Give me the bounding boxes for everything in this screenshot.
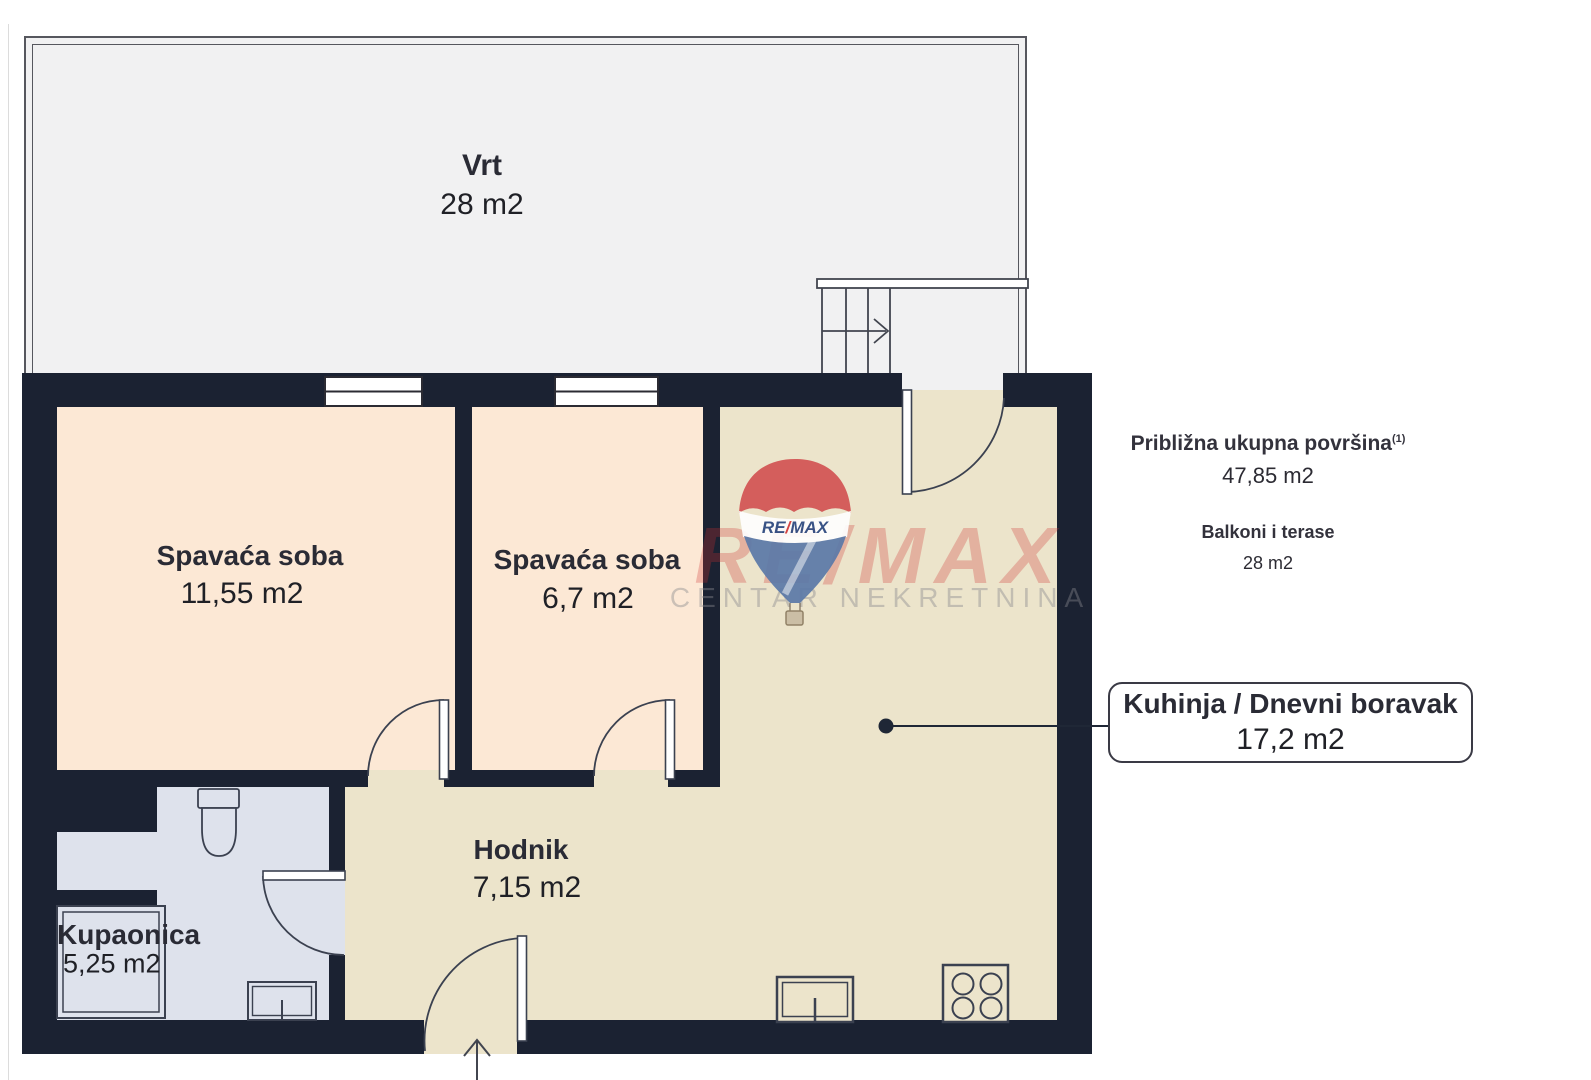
room-area-vrt: 28 m2: [440, 190, 523, 220]
wall-bottom-b: [517, 1020, 1092, 1054]
room-label-bedroom1: Spavaća soba: [157, 542, 344, 570]
wall-top-a: [22, 373, 902, 407]
kitchen-floor: [720, 407, 1057, 1020]
room-label-bedroom2: Spavaća soba: [494, 546, 681, 574]
wall-bedrooms-bottom-b: [444, 770, 594, 787]
kitchen-callout: Kuhinja / Dnevni boravak 17,2 m2: [1108, 682, 1473, 763]
floor-plan-page: { "rooms": { "vrt": {"name": "Vrt", "are…: [0, 0, 1591, 1080]
kitchen-callout-title: Kuhinja / Dnevni boravak: [1123, 688, 1458, 720]
terrace-area: [24, 36, 1027, 373]
wall-bedrooms-bottom-a: [53, 770, 368, 787]
wall-shower-bar: [53, 890, 157, 906]
page-edge-line: [8, 24, 9, 1080]
wall-between-bedrooms: [455, 407, 472, 787]
room-area-bedroom2: 6,7 m2: [542, 584, 634, 614]
room-area-hodnik: 7,15 m2: [473, 873, 581, 903]
terrace-inner-border: [32, 44, 1019, 373]
wall-bedrooms-bottom-c: [668, 770, 720, 787]
wall-bottom-a: [22, 1020, 424, 1054]
threshold-entrance: [424, 1020, 517, 1054]
room-label-vrt: Vrt: [462, 151, 502, 181]
threshold-bedroom2: [594, 770, 668, 787]
kitchen-callout-area: 17,2 m2: [1236, 723, 1344, 757]
threshold-bathroom: [329, 872, 345, 955]
room-label-kupaonica: Kupaonica: [57, 921, 200, 949]
wall-bathroom-right-b: [329, 955, 345, 1020]
wall-bathroom-block: [53, 787, 157, 832]
wall-bathroom-right-a: [329, 787, 345, 872]
room-area-kupaonica: 5,25 m2: [63, 951, 161, 978]
watermark-subtitle-text: CENTAR NEKRETNINA: [655, 584, 1105, 612]
threshold-terrace-door-bottom: [902, 390, 1003, 407]
wall-right-outer: [1057, 373, 1092, 1054]
threshold-terrace-door-top: [902, 373, 1003, 390]
threshold-bedroom1: [368, 770, 444, 787]
balcony-label: Balkoni i terase: [1093, 522, 1443, 543]
footnote-marker: (1): [1392, 433, 1405, 445]
area-summary: Približna ukupna površina(1) 47,85 m2 Ba…: [1093, 433, 1443, 574]
total-area-value: 47,85 m2: [1093, 463, 1443, 489]
room-area-bedroom1: 11,55 m2: [181, 579, 304, 609]
wall-left-outer: [22, 373, 57, 1054]
total-area-label: Približna ukupna površina(1): [1093, 433, 1443, 454]
room-label-hodnik: Hodnik: [474, 836, 569, 864]
balcony-value: 28 m2: [1093, 553, 1443, 574]
